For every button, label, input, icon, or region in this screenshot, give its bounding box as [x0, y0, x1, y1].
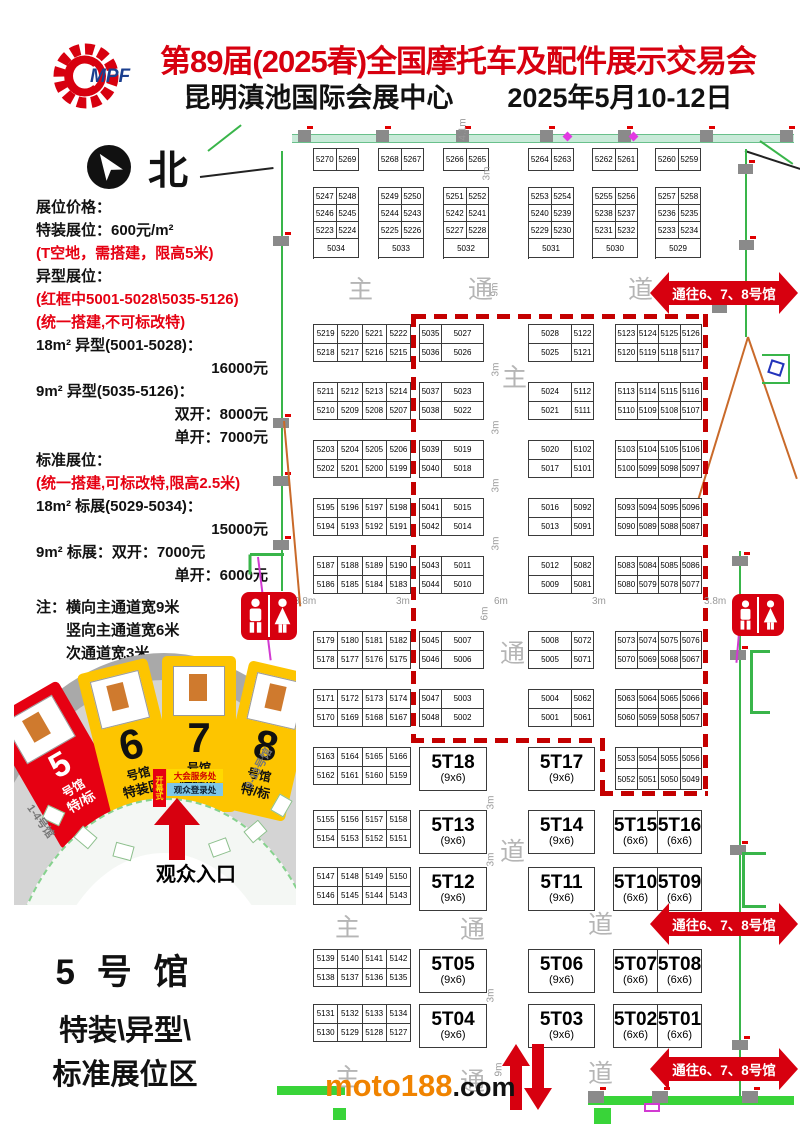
tbox-id: 5T06 — [540, 955, 583, 975]
booth-tbox: 5T05(9x6) — [419, 949, 487, 993]
post-tick — [742, 841, 748, 844]
booth-cell: 5045 — [420, 632, 442, 651]
dashed-zone-bottom1 — [411, 738, 605, 743]
booth-cell: 5109 — [638, 402, 660, 421]
column-post — [652, 1091, 668, 1103]
booth-block: 5047500350485002 — [419, 689, 484, 727]
hall-number: 7 — [187, 716, 210, 760]
booth-cell: 5012 — [529, 557, 572, 576]
post-tick — [285, 232, 291, 235]
booth-cell: 5119 — [638, 344, 660, 363]
tbox-size: (9x6) — [549, 893, 574, 905]
door-bracket — [750, 650, 770, 714]
booth-cell: 5235 — [679, 205, 702, 222]
dimension-label: 3.8m — [704, 596, 726, 607]
booth-block: 5045500750465006 — [419, 631, 484, 669]
tbox-size: (9x6) — [549, 773, 574, 785]
arrow-label: 通往6、7、8号馆 — [667, 912, 781, 936]
booth-cell: 5220 — [338, 325, 362, 344]
booth-cell: 5251 — [444, 188, 467, 205]
column-post — [298, 130, 311, 142]
booth-cell: 5076 — [681, 632, 703, 651]
booth-cell: 5053 — [616, 748, 638, 769]
booth-cell: 5048 — [420, 709, 442, 728]
tbox-id: 5T15 — [614, 816, 657, 836]
booth-cell: 5037 — [420, 383, 442, 402]
booth-cell: 5085 — [659, 557, 681, 576]
arrow-right-tip — [779, 1048, 798, 1090]
booth-cell: 5174 — [387, 690, 411, 709]
booth-cell: 5253 — [529, 188, 552, 205]
booth-cell: 5155 — [314, 811, 338, 830]
booth-cell: 5195 — [314, 499, 338, 518]
booth-tbox: 5T06(9x6) — [528, 949, 595, 993]
column-post — [780, 130, 793, 142]
booth-cell: 5091 — [572, 518, 594, 537]
tbox-id: 5T18 — [431, 753, 474, 773]
watermark-orange: moto188 — [325, 1068, 452, 1103]
booth-cell: 5159 — [387, 767, 411, 786]
booth-cell: 5236 — [656, 205, 679, 222]
booth-cell: 5228 — [467, 222, 490, 239]
booth-cell: 5148 — [338, 868, 362, 887]
booth-cell: 5178 — [314, 651, 338, 670]
booth-tbox: 5T18(9x6) — [419, 747, 487, 791]
stand-mark — [265, 683, 287, 711]
booth-tbox: 5T08(6x6) — [657, 949, 702, 993]
booth-cell: 5244 — [379, 205, 402, 222]
booth-cell: 5129 — [338, 1024, 362, 1043]
booth-cell: 5147 — [314, 868, 338, 887]
booth-cell: 5227 — [444, 222, 467, 239]
booth-block: 51235124512551265120511951185117 — [615, 324, 702, 362]
post-tick — [285, 536, 291, 539]
booth-cell: 5188 — [338, 557, 362, 576]
booth-block: 51875188518951905186518551845183 — [313, 556, 411, 594]
dimension-label: 3m — [592, 596, 606, 607]
booth-cell: 5057 — [681, 709, 703, 728]
booth-cell: 5035 — [420, 325, 442, 344]
booth-cell: 5028 — [529, 325, 572, 344]
booth-cell: 5033 — [379, 239, 424, 258]
tbox-id: 5T04 — [431, 1010, 474, 1030]
booth-cell: 5238 — [593, 205, 616, 222]
female-icon — [759, 597, 782, 633]
booth-cell: 5142 — [387, 950, 411, 969]
booth-cell: 5146 — [314, 887, 338, 906]
aisle-label: 道 — [588, 1054, 613, 1090]
booth-cell: 5018 — [442, 460, 484, 479]
arrow-label: 通往6、7、8号馆 — [667, 281, 781, 305]
booth-cell: 5010 — [442, 576, 484, 595]
booth-block: 5255525652385237523152325030 — [592, 187, 638, 259]
booth-cell: 5026 — [442, 344, 484, 363]
booth-cell: 5182 — [387, 632, 411, 651]
booth-tbox: 5T16(6x6) — [657, 810, 702, 854]
booth-cell: 5101 — [572, 460, 594, 479]
booth-block: 52195220522152225218521752165215 — [313, 324, 411, 362]
booth-cell: 5161 — [338, 767, 362, 786]
post-tick — [744, 552, 750, 555]
tbox-size: (6x6) — [623, 975, 648, 987]
wall-line — [281, 151, 283, 591]
dashed-zone-top — [413, 314, 708, 319]
booth-cell: 5116 — [681, 383, 703, 402]
booth-cell: 5024 — [529, 383, 572, 402]
arrow-label: 通往6、7、8号馆 — [667, 1057, 781, 1081]
booth-cell: 5199 — [387, 460, 411, 479]
booth-cell: 5107 — [681, 402, 703, 421]
booth-cell: 5260 — [656, 149, 679, 171]
booth-cell: 5184 — [363, 576, 387, 595]
to-halls-678-arrow: 通往6、7、8号馆 — [650, 272, 798, 314]
tbox-size: (6x6) — [623, 836, 648, 848]
booth-cell: 5073 — [616, 632, 638, 651]
arrow-right-tip — [779, 903, 798, 945]
arrow-head — [154, 798, 200, 825]
booth-cell: 5036 — [420, 344, 442, 363]
booth-cell: 5264 — [529, 149, 552, 171]
booth-cell: 5126 — [681, 325, 703, 344]
booth-cell: 5094 — [638, 499, 660, 518]
booth-cell: 5058 — [659, 709, 681, 728]
booth-cell: 5138 — [314, 969, 338, 988]
booth-cell: 5207 — [387, 402, 411, 421]
booth-block: 5039501950405018 — [419, 440, 484, 478]
booth-cell: 5137 — [338, 969, 362, 988]
tbox-size: (6x6) — [667, 1030, 692, 1042]
booth-cell: 5099 — [638, 460, 660, 479]
booth-block: 5024511250215111 — [528, 382, 594, 420]
booth-cell: 5125 — [659, 325, 681, 344]
booth-cell: 5254 — [552, 188, 575, 205]
column-post — [273, 236, 289, 246]
booth-tbox: 5T07(6x6) — [613, 949, 658, 993]
booth-cell: 5043 — [420, 557, 442, 576]
booth-cell: 5219 — [314, 325, 338, 344]
booth-cell: 5168 — [363, 709, 387, 728]
dashed-zone-right — [703, 314, 708, 796]
booth-block: 5041501550425014 — [419, 498, 484, 536]
dimension-label: 3m — [490, 479, 501, 493]
booth-block: 50935094509550965090508950885087 — [615, 498, 702, 536]
booth-block: 52645263 — [528, 148, 574, 171]
booth-cell: 5200 — [363, 460, 387, 479]
booth-cell: 5074 — [638, 632, 660, 651]
booth-block: 5028512250255121 — [528, 324, 594, 362]
booth-cell: 5008 — [529, 632, 572, 651]
booth-cell: 5092 — [572, 499, 594, 518]
booth-cell: 5172 — [338, 690, 362, 709]
arrow-right-tip — [779, 272, 798, 314]
booth-cell: 5167 — [387, 709, 411, 728]
booth-cell: 5081 — [572, 576, 594, 595]
column-post — [540, 130, 553, 142]
booth-block: 5247524852465245522352245034 — [313, 187, 359, 259]
booth-cell: 5009 — [529, 576, 572, 595]
booth-cell: 5213 — [363, 383, 387, 402]
tbox-id: 5T02 — [614, 1010, 657, 1030]
booth-cell: 5226 — [402, 222, 425, 239]
booth-cell: 5205 — [363, 441, 387, 460]
to-halls-678-arrow: 通往6、7、8号馆 — [650, 1048, 798, 1090]
column-post — [732, 556, 748, 566]
tbox-size: (9x6) — [549, 836, 574, 848]
booth-cell: 5046 — [420, 651, 442, 670]
tbox-id: 5T07 — [614, 955, 657, 975]
tbox-id: 5T03 — [540, 1010, 583, 1030]
booth-tbox: 5T15(6x6) — [613, 810, 658, 854]
post-tick — [307, 126, 313, 129]
tbox-id: 5T16 — [658, 816, 701, 836]
booth-cell: 5166 — [387, 748, 411, 767]
booth-cell: 5059 — [638, 709, 660, 728]
booth-cell: 5194 — [314, 518, 338, 537]
booth-cell: 5103 — [616, 441, 638, 460]
booth-block: 5020510250175101 — [528, 440, 594, 478]
booth-cell: 5007 — [442, 632, 484, 651]
booth-cell: 5247 — [314, 188, 337, 205]
booth-cell: 5221 — [363, 325, 387, 344]
booth-cell: 5014 — [442, 518, 484, 537]
column-post — [273, 418, 289, 428]
booth-tbox: 5T13(9x6) — [419, 810, 487, 854]
booth-cell: 5049 — [681, 769, 703, 790]
booth-cell: 5225 — [379, 222, 402, 239]
booth-cell: 5041 — [420, 499, 442, 518]
restroom-icon — [241, 592, 297, 640]
booth-cell: 5177 — [338, 651, 362, 670]
tbox-id: 5T13 — [431, 816, 474, 836]
dimension-label: 3m — [490, 363, 501, 377]
booth-cell: 5084 — [638, 557, 660, 576]
booth-cell: 5121 — [572, 344, 594, 363]
booth-cell: 5013 — [529, 518, 572, 537]
booth-block: 5035502750365026 — [419, 324, 484, 362]
booth-cell: 5127 — [387, 1024, 411, 1043]
booth-cell: 5050 — [659, 769, 681, 790]
booth-cell: 5173 — [363, 690, 387, 709]
booth-cell: 5006 — [442, 651, 484, 670]
booth-block: 51395140514151425138513751365135 — [313, 949, 411, 987]
booth-cell: 5022 — [442, 402, 484, 421]
booth-cell: 5165 — [363, 748, 387, 767]
booth-cell: 5122 — [572, 325, 594, 344]
booth-cell: 5038 — [420, 402, 442, 421]
dimension-label: 4.1m — [458, 118, 469, 140]
post-tick — [749, 160, 755, 163]
booth-cell: 5104 — [638, 441, 660, 460]
stand-mark — [106, 682, 129, 711]
booth-cell: 5162 — [314, 767, 338, 786]
booth-cell: 5183 — [387, 576, 411, 595]
booth-cell: 5005 — [529, 651, 572, 670]
dashed-zone-bottom2 — [600, 791, 708, 796]
booth-block: 5008507250055071 — [528, 631, 594, 669]
tbox-size: (9x6) — [440, 893, 465, 905]
booth-cell: 5179 — [314, 632, 338, 651]
tbox-id: 5T01 — [658, 1010, 701, 1030]
booth-cell: 5203 — [314, 441, 338, 460]
watermark: moto188.com — [325, 1068, 516, 1104]
booth-cell: 5061 — [572, 709, 594, 728]
aisle-label: 通 — [460, 910, 485, 946]
booth-cell: 5204 — [338, 441, 362, 460]
green-block — [333, 1108, 346, 1120]
booth-block: 52115212521352145210520952085207 — [313, 382, 411, 420]
booth-cell: 5245 — [337, 205, 360, 222]
hall5-zone-line3: 标准展位区 — [14, 1053, 236, 1097]
booth-block: 52035204520552065202520152005199 — [313, 440, 411, 478]
visitor-registration-label: 观众登录处 — [167, 783, 223, 796]
booth-cell: 5027 — [442, 325, 484, 344]
booth-tbox: 5T02(6x6) — [613, 1004, 658, 1048]
booth-cell: 5113 — [616, 383, 638, 402]
booth-cell: 5258 — [679, 188, 702, 205]
tbox-size: (9x6) — [549, 1030, 574, 1042]
wall-line — [207, 124, 241, 151]
booth-cell: 5015 — [442, 499, 484, 518]
tbox-size: (6x6) — [667, 975, 692, 987]
post-tick — [549, 126, 555, 129]
dimension-label: 3m — [485, 853, 496, 867]
booth-cell: 5118 — [659, 344, 681, 363]
booth-block: 51955196519751985194519351925191 — [313, 498, 411, 536]
aisle-label: 道 — [588, 905, 613, 941]
booth-cell: 5186 — [314, 576, 338, 595]
booth-cell: 5123 — [616, 325, 638, 344]
booth-block: 51035104510551065100509950985097 — [615, 440, 702, 478]
booth-cell: 5132 — [338, 1005, 362, 1024]
dashed-zone-step — [600, 738, 605, 796]
booth-block: 52605259 — [655, 148, 701, 171]
booth-cell: 5198 — [387, 499, 411, 518]
hall-stands — [89, 670, 150, 730]
aisle-label: 道 — [500, 832, 525, 868]
booth-cell: 5197 — [363, 499, 387, 518]
booth-cell: 5054 — [638, 748, 660, 769]
tbox-size: (9x6) — [549, 975, 574, 987]
booth-block: 51555156515751585154515351525151 — [313, 810, 411, 848]
booth-cell: 5187 — [314, 557, 338, 576]
wall-line — [250, 553, 284, 556]
booth-block: 51475148514951505146514551445143 — [313, 867, 411, 905]
booth-cell: 5267 — [402, 149, 425, 171]
booth-cell: 5140 — [338, 950, 362, 969]
male-icon — [734, 597, 757, 633]
booth-cell: 5120 — [616, 344, 638, 363]
booth-block: 50635064506550665060505950585057 — [615, 689, 702, 727]
booth-cell: 5070 — [616, 651, 638, 670]
booth-cell: 5105 — [659, 441, 681, 460]
stand-mark — [189, 674, 207, 700]
booth-cell: 5023 — [442, 383, 484, 402]
tbox-size: (6x6) — [623, 893, 648, 905]
booth-cell: 5248 — [337, 188, 360, 205]
to-halls-678-arrow: 通往6、7、8号馆 — [650, 903, 798, 945]
booth-cell: 5004 — [529, 690, 572, 709]
booth-cell: 5151 — [387, 830, 411, 849]
booth-cell: 5211 — [314, 383, 338, 402]
stand-mark — [22, 711, 51, 742]
dimension-label: 3m — [490, 537, 501, 551]
booth-cell: 5252 — [467, 188, 490, 205]
booth-cell: 5034 — [314, 239, 359, 258]
visitor-entrance-label: 观众入口 — [116, 858, 276, 887]
booth-block: 52685267 — [378, 148, 424, 171]
booth-cell: 5208 — [363, 402, 387, 421]
booth-cell: 5192 — [363, 518, 387, 537]
post-tick — [744, 1036, 750, 1039]
booth-cell: 5078 — [659, 576, 681, 595]
booth-cell: 5016 — [529, 499, 572, 518]
booth-cell: 5190 — [387, 557, 411, 576]
booth-cell: 5098 — [659, 460, 681, 479]
booth-block: 52625261 — [592, 148, 638, 171]
aisle-label: 主 — [348, 270, 373, 306]
booth-cell: 5135 — [387, 969, 411, 988]
booth-tbox: 5T01(6x6) — [657, 1004, 702, 1048]
booth-cell: 5044 — [420, 576, 442, 595]
booth-cell: 5055 — [659, 748, 681, 769]
tbox-id: 5T14 — [540, 816, 583, 836]
booth-cell: 5071 — [572, 651, 594, 670]
hall-stands — [173, 666, 225, 716]
booth-cell: 5003 — [442, 690, 484, 709]
booth-cell: 5112 — [572, 383, 594, 402]
booth-tbox: 5T04(9x6) — [419, 1004, 487, 1048]
dimension-label: 3.8m — [294, 596, 316, 607]
booth-cell: 5209 — [338, 402, 362, 421]
booth-block: 5251525252425241522752285032 — [443, 187, 489, 259]
booth-cell: 5210 — [314, 402, 338, 421]
booth-cell: 5246 — [314, 205, 337, 222]
column-post — [273, 540, 289, 550]
booth-cell: 5025 — [529, 344, 572, 363]
column-post — [588, 1091, 604, 1103]
booth-cell: 5230 — [552, 222, 575, 239]
booth-block: 51135114511551165110510951085107 — [615, 382, 702, 420]
hall-number: 6 — [114, 720, 147, 768]
booth-cell: 5082 — [572, 557, 594, 576]
booth-cell: 5051 — [638, 769, 660, 790]
booth-cell: 5056 — [681, 748, 703, 769]
booth-cell: 5201 — [338, 460, 362, 479]
booth-cell: 5077 — [681, 576, 703, 595]
booth-cell: 5222 — [387, 325, 411, 344]
booth-cell: 5191 — [387, 518, 411, 537]
booth-cell: 5268 — [379, 149, 402, 171]
booth-cell: 5060 — [616, 709, 638, 728]
booth-cell: 5117 — [681, 344, 703, 363]
post-tick — [385, 126, 391, 129]
bottom-wall — [588, 1096, 794, 1105]
hall5-zone-label: 5 号 馆 特装\异型\ 标准展位区 — [14, 944, 236, 1097]
booth-cell: 5152 — [363, 830, 387, 849]
booth-cell: 5100 — [616, 460, 638, 479]
booth-cell: 5040 — [420, 460, 442, 479]
booth-cell: 5180 — [338, 632, 362, 651]
dimension-label: 3m — [485, 796, 496, 810]
booth-cell: 5206 — [387, 441, 411, 460]
booth-cell: 5144 — [363, 887, 387, 906]
aisle-label: 主 — [502, 358, 527, 394]
booth-cell: 5217 — [338, 344, 362, 363]
booth-block: 5016509250135091 — [528, 498, 594, 536]
booth-cell: 5011 — [442, 557, 484, 576]
tbox-size: (9x6) — [440, 975, 465, 987]
booth-cell: 5020 — [529, 441, 572, 460]
